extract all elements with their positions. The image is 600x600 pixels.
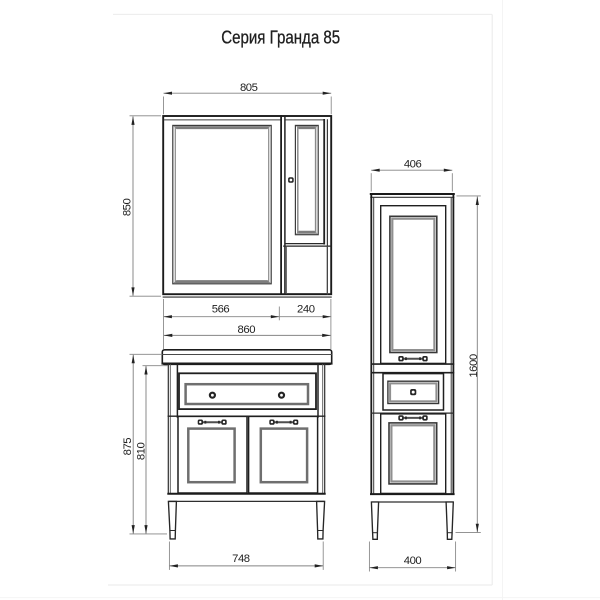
svg-text:810: 810	[136, 442, 148, 460]
svg-text:406: 406	[404, 159, 422, 171]
svg-text:805: 805	[240, 82, 258, 94]
svg-text:566: 566	[212, 304, 230, 316]
svg-text:875: 875	[122, 438, 134, 456]
svg-text:748: 748	[232, 553, 250, 565]
svg-text:1600: 1600	[468, 354, 480, 377]
svg-text:860: 860	[238, 324, 256, 336]
svg-text:400: 400	[404, 555, 422, 567]
svg-text:Серия Гранда 85: Серия Гранда 85	[221, 27, 340, 48]
svg-text:850: 850	[122, 198, 134, 216]
svg-text:240: 240	[297, 304, 315, 316]
